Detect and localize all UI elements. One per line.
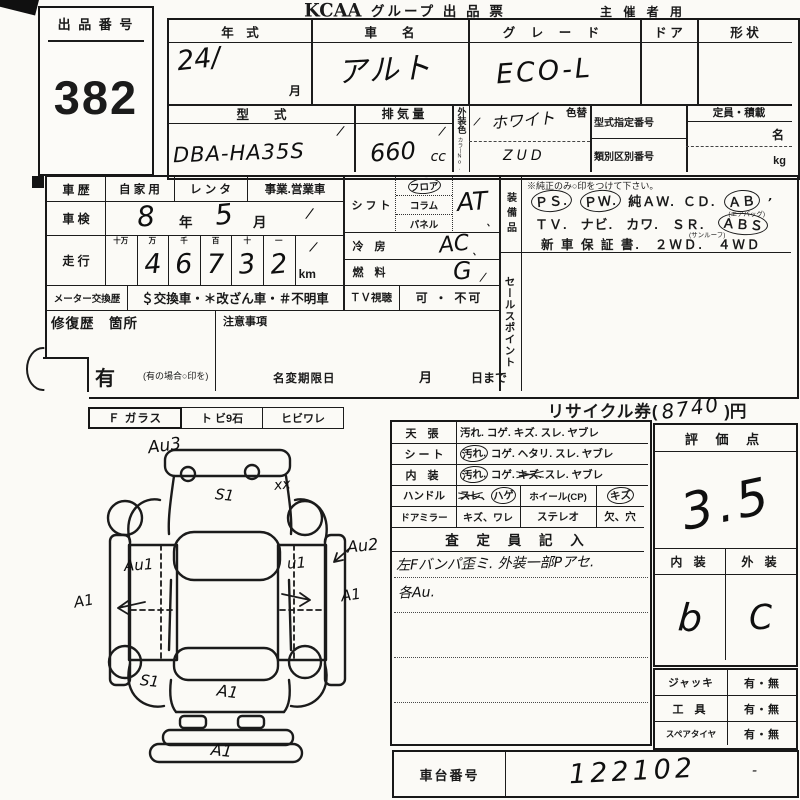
equipment-warranty: 新 車 保 証 書. [541,234,641,253]
ac-value: AC [438,232,471,257]
diagram-annotation: A1 [73,592,95,610]
equipment-kawa: カワ. [626,214,659,233]
grade-value: ECO-L [495,55,594,89]
ac-value-cell: AC 、 [395,232,501,260]
spare-tire-options: 有・無 [728,722,796,745]
ac-label: 冷 房 [343,232,397,260]
interior-score-value: b [677,598,704,638]
digit-header: 十万 [105,235,137,246]
name-change-month: 月 [419,367,432,386]
equipment-cd: ＣＤ. [683,191,716,210]
ceiling-items: 汚れ. コゲ. キズ. スレ. ヤブレ [456,422,648,444]
check-mark: / [306,207,313,222]
diagram-annotation: S1 [214,487,235,504]
circle-mark-interior-dirt: 汚れ. [459,465,488,484]
equipment-label-cell: 装備品 [499,177,522,253]
displacement-value: 660 [369,138,416,165]
diagram-annotation: A1 [210,742,233,760]
spare-tire-row: スペアタイヤ 有・無 [655,722,796,745]
color-no-label: カラーNo. [456,137,462,172]
check-mark: / [480,271,486,284]
shape-header: 形 状 [697,20,792,43]
check-mark: / [309,241,316,255]
inspector-note-1: 左Fバンパ歪ミ. 外装一部Pアセ. [396,555,594,572]
score-value-cell: 3.5 [655,452,796,549]
inspector-note-2: 各Au. [398,585,435,600]
color-cell: 色替 / ホワイト ZUD [469,104,592,172]
digit-header: 百 [200,235,232,246]
wheel-items: キズ [596,485,644,507]
circle-mark-handle-bald: ハゲ [491,486,517,505]
year-value: 24/ [176,44,222,75]
shift-option-column: コラム [396,196,452,215]
chassis-number-value: 122102 [568,755,696,789]
note-line [394,577,648,578]
ceiling-item-dirt: 汚れ. [460,425,484,440]
month-suffix: 月 [289,82,301,99]
interior-items-rest: スレ. ヤブレ [545,467,603,482]
meter-history-options: ＄交換車・＊改ざん車・＃不明車 [127,285,345,311]
mileage-digit-col: 十万 [105,235,138,286]
capacity-weight-unit: kg [773,155,786,167]
exterior-score-header: 外 装 [726,549,796,574]
digit-value: 3 [230,244,265,283]
inspection-month-suffix: 月 [253,211,267,231]
digit-value [105,246,137,282]
check-mark: / [439,125,445,138]
door-mirror-items: キズ、ワレ [456,506,521,528]
interior-score-header: 内 装 [655,549,726,574]
auction-sheet: 出 品 番 号 382 KCAA グループ 出 品 票 主 催 者 用 年 式 … [0,0,800,800]
displacement-unit: cc [431,150,446,164]
circle-mark: フロア [407,177,441,195]
mileage-unit-cell: / km [295,235,343,286]
capacity-divider [686,146,792,147]
digit-value: 2 [261,245,296,284]
repair-notch [43,357,89,399]
score-sub-headers: 内 装 外 装 [655,549,796,575]
note-line [394,702,648,703]
recycle-label-pre: リサイクル券( [548,398,659,422]
shift-option-panel: パネル [396,215,452,232]
type-no-cell: 型式指定番号 類別区別番号 [590,104,688,172]
seat-items-rest: コゲ. ヘタリ. スレ. ヤブレ [491,446,614,461]
color-no-value: ZUD [503,149,546,163]
jack-options: 有・無 [728,670,796,695]
interior-score-cell: b [655,575,726,660]
shift-value: AT [456,188,488,215]
diagram-annotation: A1 [340,587,362,605]
chassis-dash-mark: - [752,764,757,778]
mileage-digit-col: 万 4 [137,235,170,286]
check-mark: 、 [472,246,483,257]
inspection-year: 8 [136,202,156,231]
diagram-annotation: u1 [287,555,307,571]
handle-label: ハンドル [392,485,457,507]
meter-history-label: メーター交換歴 [47,285,128,311]
interior-item-burn: コゲ. [491,467,515,482]
tv-label: ＴＶ視聴 [343,285,400,311]
jack-row: ジャッキ 有・無 [655,670,796,696]
door-mirror-label: ドアミラー [392,506,457,528]
stereo-label: ステレオ [520,506,597,528]
score-sub-values: b C [655,575,796,660]
class-no-label: 類別区別番号 [590,139,686,172]
color-change-label: 色替 [566,105,587,120]
history-table: 車 歴 自 家 用 レ ン タ 事業.営業車 車 検 8 年 5 月 / 走 行… [45,175,799,399]
scan-artifact-corner [0,0,39,16]
mileage-label: 走 行 [47,235,106,286]
sales-point-label: セールスポイント [503,276,518,368]
check-mark: 、 [486,217,497,228]
sales-point-box [521,252,791,391]
circle-mark-ps: ＰＳ. [530,189,572,214]
mileage-digit-col: 十 3 [231,235,264,286]
equipment-2wd: ２ＷＤ. [655,234,704,253]
history-private: 自 家 用 [105,177,175,202]
equipment-line2: ＴＶ. ナビ. カワ. ＳＲ. ＡＢＳ [535,213,768,235]
ceiling-label: 天 張 [392,422,457,444]
diagram-annotation: Au3 [147,436,182,457]
cross-mark-interior-scratch: キズ. [518,467,542,482]
check-mark: / [474,116,480,128]
history-label: 車 歴 [47,177,106,202]
fuel-value-cell: G / [395,259,501,286]
stone-chip-label: ト ビ9石 [182,407,263,429]
fuel-value: G [452,258,473,284]
history-business: 事業.営業車 [247,177,345,202]
shift-option-floor: フロア [396,177,452,196]
repair-exist-note: (有の場合○印を) [143,369,208,382]
note-line [394,657,648,658]
note-line [394,612,648,613]
tool-label: 工 具 [655,696,728,721]
recycle-label-post: )円 [724,398,746,422]
inspection-month: 5 [214,200,235,230]
exterior-score-value: C [748,600,774,636]
check-mark: ’ [768,197,773,208]
score-header: 評 価 点 [655,425,796,452]
circle-mark-pw: ＰＷ. [579,189,621,214]
form-title-text: グループ 出 品 票 [371,4,506,19]
grade-cell: ECO-L [468,42,642,106]
wheel-label: ホイール(CP) [520,485,597,507]
ceiling-items-rest: コゲ. キズ. スレ. ヤブレ [487,425,599,440]
equipment-navi: ナビ. [581,214,614,233]
car-name-cell: アルト [311,42,470,106]
year-header: 年 式 [169,20,313,43]
color-value: ホワイト [490,110,555,132]
lot-number-label: 出 品 番 号 [48,10,144,42]
exterior-color-label: 外装色 [456,107,466,134]
vehicle-table: 年 式 車 名 グ レ ー ド ド ア 形 状 24/ 月 アルト ECO-L … [167,18,800,180]
digit-value: 7 [200,246,232,282]
displacement-header: 排 気 量 [354,104,452,124]
spare-tire-label: スペアタイヤ [655,722,728,745]
shift-value-cell: AT 、 [451,177,501,233]
capacity-header: 定員・積載 [686,104,792,122]
f-glass-label: Ｆ ガラス [88,407,182,429]
cross-mark-handle-wear: スレ [460,488,481,503]
grade-header: グ レ ー ド [468,20,642,43]
score-value: 3.5 [676,470,776,538]
diagram-annotation: Au2 [346,536,379,555]
equipment-4wd: ４ＷＤ [718,234,762,253]
inspector-header: 査 定 員 記 入 [392,527,644,552]
tool-options: 有・無 [728,696,796,721]
equipment-aw: 純ＡＷ. [628,191,675,210]
sales-point-label-cell: セールスポイント [499,252,522,391]
door-header: ド ア [640,20,699,43]
stereo-items: 欠、穴 [596,506,644,528]
shift-options-box: フロア コラム パネル [395,177,453,233]
chassis-number-label: 車台番号 [394,752,506,796]
mileage-digit-col: 百 7 [200,235,233,286]
jack-label: ジャッキ [655,670,728,695]
shift-label: シ フ ト [343,177,397,233]
circle-mark-seat-dirt: 汚れ. [459,444,488,463]
chassis-number-box: 車台番号 122102 - [392,750,799,798]
capacity-cell: 定員・積載 名 kg [686,104,792,172]
repair-notch-line [87,357,89,392]
crack-label: ヒビワレ [263,407,344,429]
equipment-label: 装備品 [503,192,518,237]
seat-label: シ ー ト [392,443,457,465]
name-change-label: 名変期限日 [273,370,336,386]
mileage-digit-col: 千 6 [168,235,201,286]
exterior-color-label-cell: 外装色 カラーNo. [452,104,470,172]
inspection-year-suffix: 年 [179,211,193,231]
exterior-score-cell: C [726,575,796,660]
diagram-annotation: xx [273,477,291,493]
model-cell: 型 式 / DBA-HA35S [169,104,356,172]
equipment-line3: 新 車 保 証 書. ２ＷＤ. ４ＷＤ [541,234,761,253]
recycle-value: 8740 [657,394,725,423]
diagram-annotation: S1 [139,673,160,690]
type-no-label: 型式指定番号 [590,104,686,139]
handle-items: スレ 、 ハゲ [456,485,521,507]
car-name-value: アルト [336,54,433,89]
inspection-label: 車 検 [47,201,106,236]
model-header: 型 式 [169,104,354,124]
caution-cell: 注意事項 名変期限日 月 日まで [215,310,501,391]
diagram-annotation: Au1 [124,557,154,574]
model-value: DBA-HA35S [173,141,305,167]
door-cell [640,42,699,106]
equipment-tv: ＴＶ. [535,214,568,233]
year-cell: 24/ 月 [169,42,313,106]
diagram-annotation: A1 [216,683,239,702]
equipment-box: ※純正のみ○印をつけて下さい。 ＰＳ. ＰＷ. 純ＡＷ. ＣＤ. ＡＢ ’ (エ… [521,177,791,253]
tv-options: 可 ・ 不可 [399,285,501,311]
shape-cell [697,42,792,106]
inspection-value-cell: 8 年 5 月 / [105,201,343,236]
seat-items: 汚れ. コゲ. ヘタリ. スレ. ヤブレ [456,443,648,465]
score-box: 評 価 点 3.5 内 装 外 装 b C [653,423,798,667]
accessories-box: ジャッキ 有・無 工 具 有・無 スペアタイヤ 有・無 [653,668,798,750]
color-cell-divider [469,141,590,142]
scan-artifact-square [32,176,44,188]
check-mark: / [336,125,343,139]
repair-label: 修復歴 箇所 [51,312,138,332]
fuel-label: 燃 料 [343,259,397,286]
digit-value: 6 [167,245,200,283]
capacity-persons-unit: 名 [772,126,784,143]
tool-row: 工 具 有・無 [655,696,796,722]
condition-table: 天 張 汚れ. コゲ. キズ. スレ. ヤブレ シ ー ト 汚れ. コゲ. ヘタ… [390,420,652,746]
interior-label: 内 装 [392,464,457,486]
repair-exist-label: 有 [95,362,115,391]
digit-value: 4 [135,245,169,283]
caution-label: 注意事項 [223,313,267,329]
lot-number: 382 [40,70,152,125]
mileage-unit: km [299,267,316,281]
interior-items: 汚れ. コゲ. キズ. スレ. ヤブレ [456,464,648,486]
circle-mark-wheel-scratch: キズ [606,486,634,505]
mileage-digit-col: 一 2 [263,235,296,286]
displacement-cell: 排 気 量 / 660 cc [354,104,454,172]
lot-number-box: 出 品 番 号 382 [38,6,154,176]
car-name-header: 車 名 [311,20,470,43]
history-rental: レ ン タ [174,177,248,202]
glass-strip: Ｆ ガラス ト ビ9石 ヒビワレ [88,407,344,429]
handle-separator: 、 [481,488,492,503]
